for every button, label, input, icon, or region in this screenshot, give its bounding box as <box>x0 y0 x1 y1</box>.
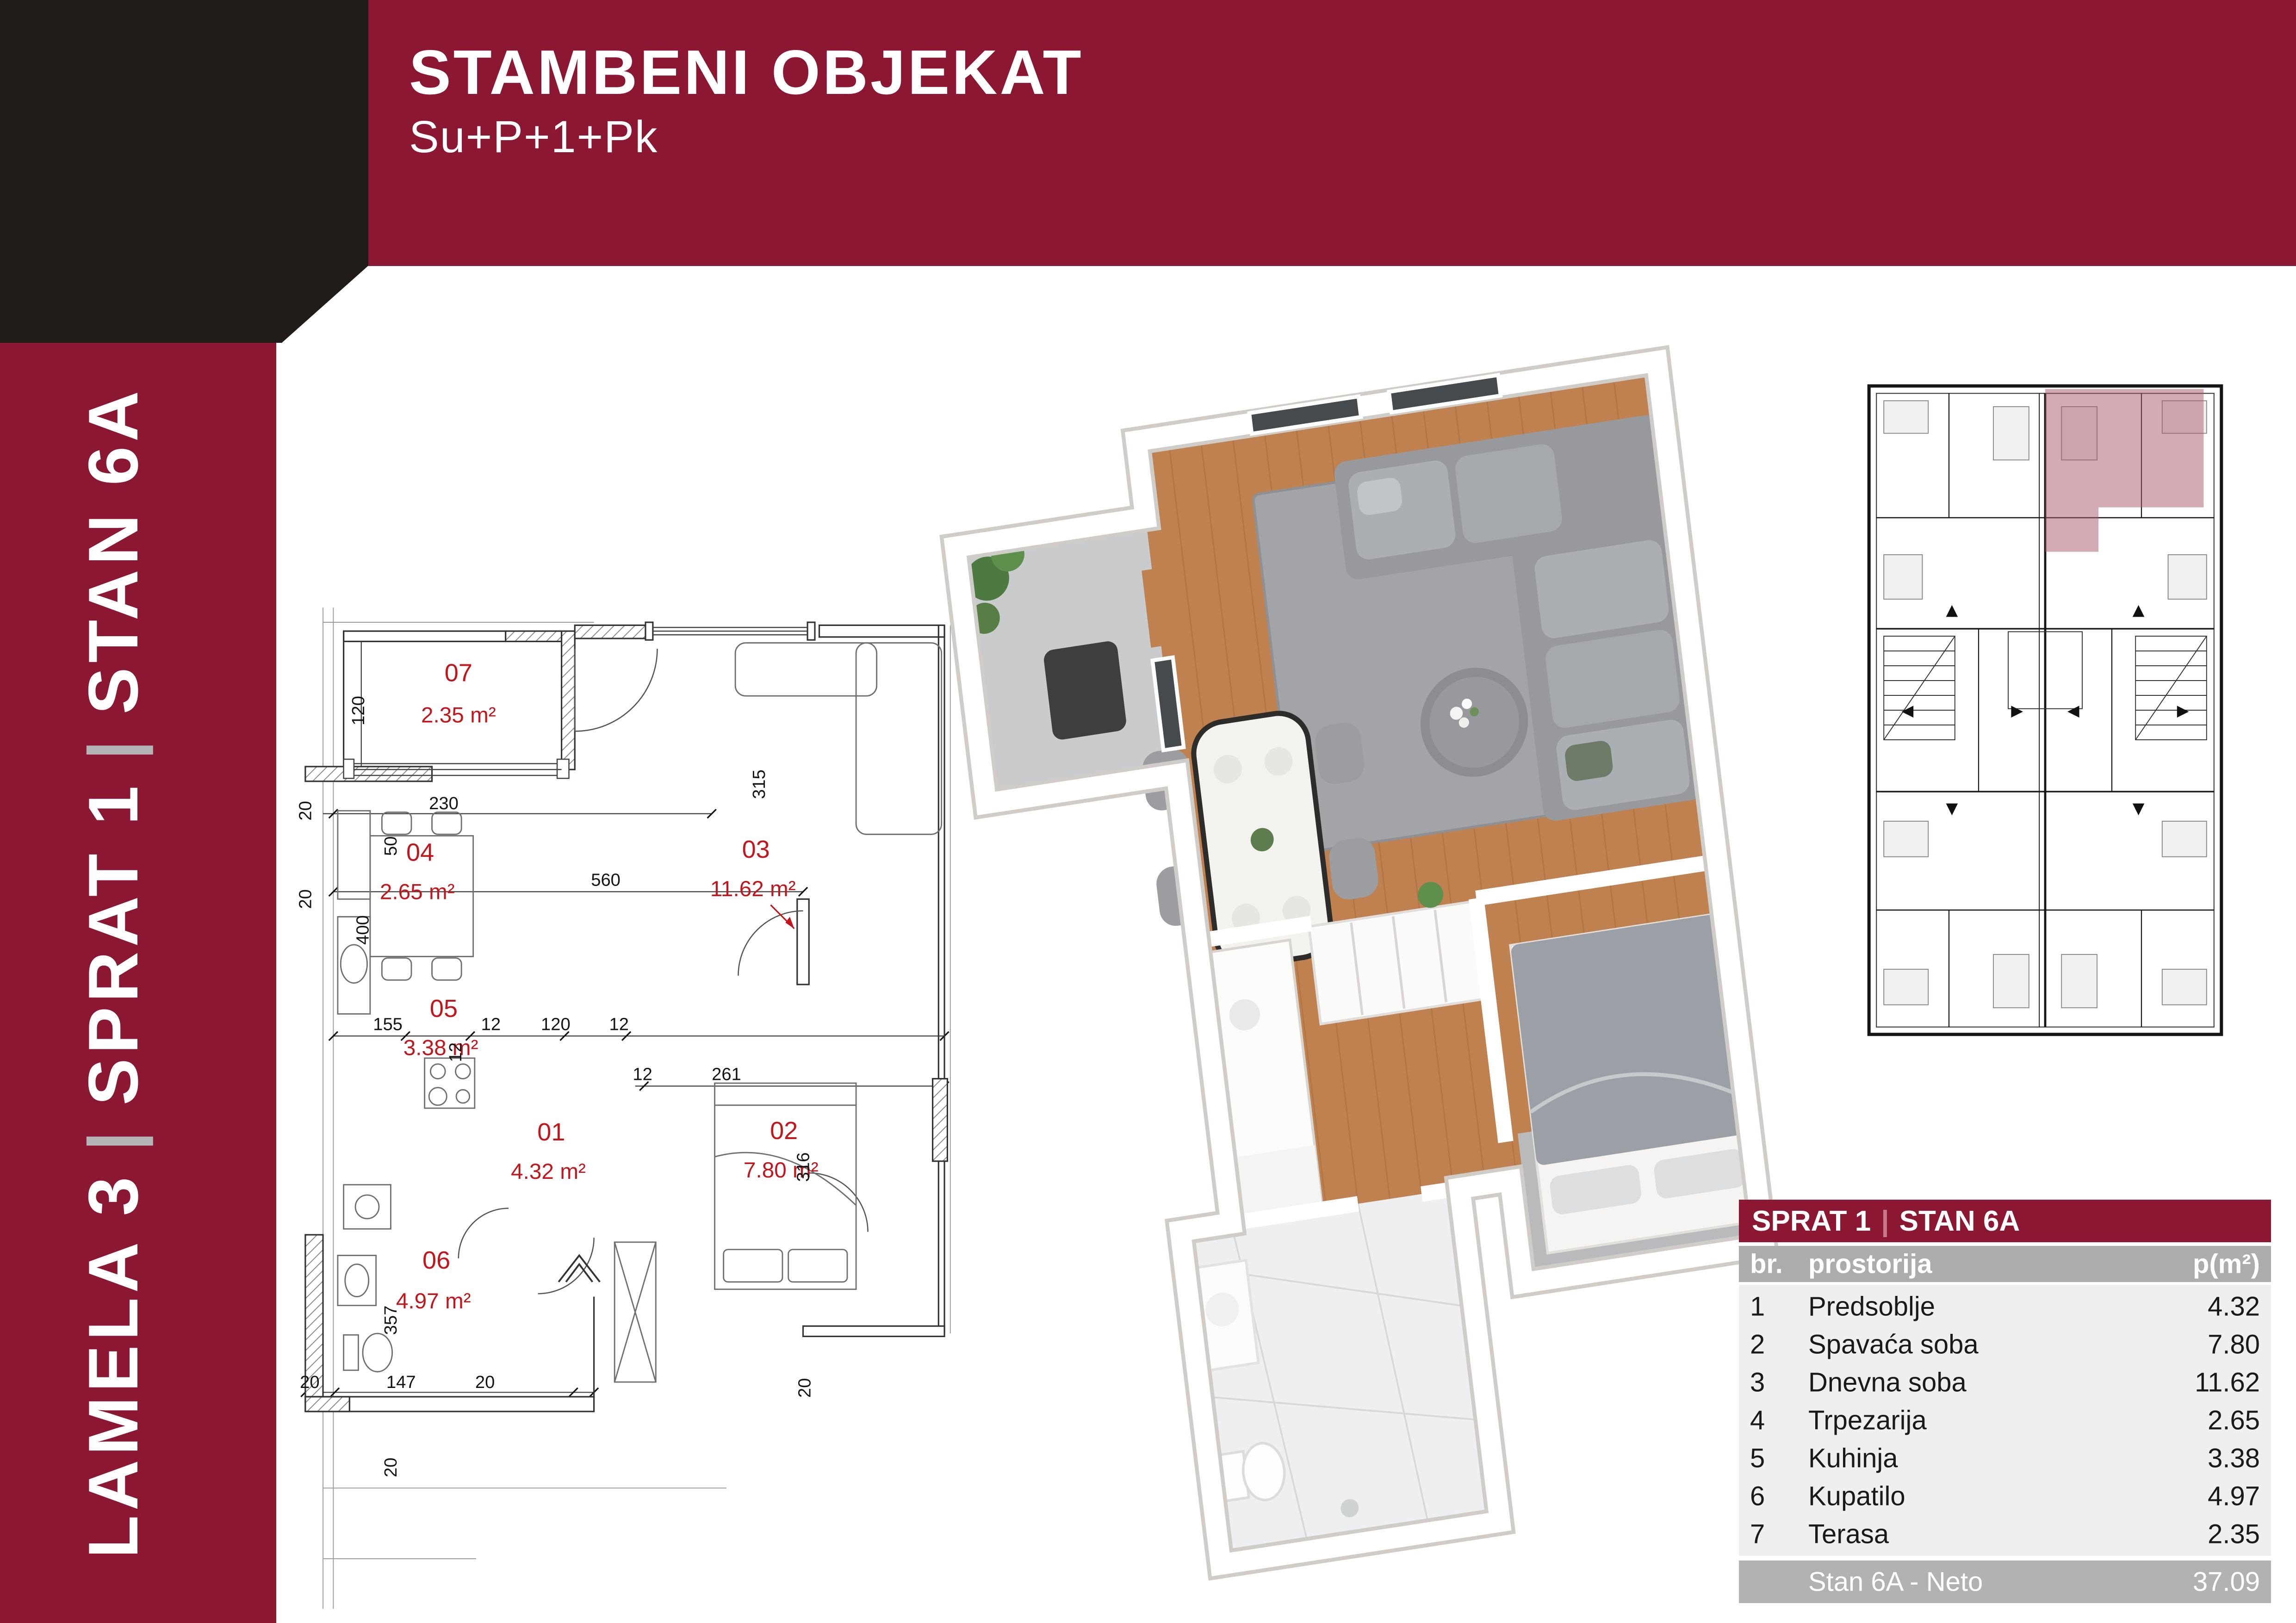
terrace-door-opening <box>1152 569 1161 646</box>
col-br: br. <box>1750 1249 1783 1280</box>
row-room: Dnevna soba <box>1808 1367 1967 1398</box>
entrance-chevron-icon <box>558 1255 600 1282</box>
row-area: 2.35 <box>2208 1519 2260 1550</box>
sidebar-lamela: LAMELA 3 <box>74 1172 153 1558</box>
brochure-page: STAMBENI OBJEKAT Su+P+1+Pk LAMELA 3|SPRA… <box>0 0 2296 1623</box>
sidebar-sprat: SPRAT 1 <box>74 781 153 1105</box>
dim: 315 <box>749 769 769 799</box>
row-num: 1 <box>1750 1291 1765 1322</box>
dim: 50 <box>381 836 401 856</box>
dim: 357 <box>381 1306 401 1335</box>
table-title-sprat: SPRAT 1 <box>1752 1205 1871 1238</box>
dim: 20 <box>296 889 316 909</box>
table-row: 5 Kuhinja 3.38 <box>1739 1439 2271 1477</box>
room-area: 4.97 m² <box>396 1289 471 1313</box>
row-room: Terasa <box>1808 1519 1889 1550</box>
kitchen-counter-icon <box>338 811 370 899</box>
table-row: 3 Dnevna soba 11.62 <box>1739 1363 2271 1401</box>
row-room: Kupatilo <box>1808 1481 1905 1512</box>
decorative-dark-block <box>0 0 368 343</box>
bathroom-sink-icon <box>338 1255 376 1305</box>
dim: 230 <box>429 793 459 813</box>
table-row: 4 Trpezarija 2.65 <box>1739 1401 2271 1439</box>
room-area: 4.32 m² <box>511 1159 586 1184</box>
dim: 12 <box>446 1042 465 1062</box>
row-num: 4 <box>1750 1405 1765 1436</box>
table-row: 7 Terasa 2.35 <box>1739 1515 2271 1553</box>
table-footer: Stan 6A - Neto 37.09 <box>1739 1561 2271 1603</box>
wardrobe-icon <box>614 1242 656 1382</box>
row-room: Kuhinja <box>1808 1443 1898 1474</box>
dim: 120 <box>348 696 368 725</box>
dim: 12 <box>609 1015 628 1035</box>
bed-icon <box>715 1083 856 1289</box>
room-area: 2.65 m² <box>380 880 455 904</box>
row-room: Spavaća soba <box>1808 1329 1979 1360</box>
sidebar-stan: STAN 6A <box>74 386 153 714</box>
toilet-icon <box>344 1333 392 1372</box>
dim: 20 <box>300 1372 319 1392</box>
row-num: 5 <box>1750 1443 1765 1474</box>
room-area: 2.35 m² <box>421 703 496 727</box>
row-area: 7.80 <box>2208 1329 2260 1360</box>
row-area: 11.62 <box>2195 1367 2260 1398</box>
dim: 120 <box>541 1015 571 1035</box>
sink-icon <box>341 945 367 983</box>
row-room: Trpezarija <box>1808 1405 1927 1436</box>
table-row: 2 Spavaća soba 7.80 <box>1739 1326 2271 1363</box>
washing-machine-icon <box>344 1185 391 1229</box>
row-area: 4.32 <box>2208 1291 2260 1322</box>
col-prostorija: prostorija <box>1808 1249 1932 1280</box>
key-plan <box>1860 377 2230 1043</box>
dim: 12 <box>481 1015 501 1035</box>
sidebar-separator: | <box>74 1127 153 1151</box>
page-subtitle: Su+P+1+Pk <box>409 111 658 163</box>
footer-total: 37.09 <box>2193 1567 2260 1598</box>
row-area: 2.65 <box>2208 1405 2260 1436</box>
row-num: 3 <box>1750 1367 1765 1398</box>
col-area: p(m²) <box>2193 1249 2260 1280</box>
room-labels: 07 2.35 m² 03 11.62 m² 04 2.65 m² 05 3.3… <box>380 659 819 1313</box>
room-label: 01 <box>537 1118 565 1146</box>
row-num: 2 <box>1750 1329 1765 1360</box>
row-room: Predsoblje <box>1808 1291 1935 1322</box>
dim: 155 <box>373 1015 403 1035</box>
stove-icon <box>425 1058 475 1108</box>
dim: 316 <box>793 1152 813 1182</box>
sidebar-separator: | <box>74 736 153 760</box>
dim: 20 <box>381 1458 401 1477</box>
room-label: 06 <box>422 1246 450 1274</box>
dim: 20 <box>296 801 316 820</box>
table-title-stan: STAN 6A <box>1899 1205 2020 1238</box>
footer-label: Stan 6A - Neto <box>1808 1567 1983 1598</box>
room-label: 05 <box>430 995 458 1022</box>
table-body: 1 Predsoblje 4.32 2 Spavaća soba 7.80 3 … <box>1739 1285 2271 1556</box>
dim: 560 <box>591 870 621 890</box>
room-area: 3.38 m² <box>403 1036 478 1060</box>
dim: 261 <box>712 1065 741 1084</box>
row-num: 6 <box>1750 1481 1765 1512</box>
room-label: 07 <box>445 659 472 687</box>
room-label: 02 <box>770 1117 798 1145</box>
dim: 20 <box>794 1378 814 1398</box>
table-row: 6 Kupatilo 4.97 <box>1739 1477 2271 1515</box>
table-column-header: br. prostorija p(m²) <box>1739 1246 2271 1282</box>
table-title-separator: | <box>1881 1205 1889 1238</box>
sidebar-vertical-label: LAMELA 3|SPRAT 1|STAN 6A <box>73 386 154 1558</box>
table-row: 1 Predsoblje 4.32 <box>1739 1288 2271 1326</box>
floorplan-2d: 07 2.35 m² 03 11.62 m² 04 2.65 m² 05 3.3… <box>285 590 958 1615</box>
render-3d <box>907 315 1788 1584</box>
room-label: 03 <box>742 836 770 863</box>
row-area: 4.97 <box>2208 1481 2260 1512</box>
dim: 12 <box>633 1065 652 1084</box>
dim: 147 <box>386 1372 416 1392</box>
row-area: 3.38 <box>2208 1443 2260 1474</box>
dim: 400 <box>353 915 373 945</box>
table-title-bar: SPRAT 1 | STAN 6A <box>1739 1200 2271 1242</box>
page-title: STAMBENI OBJEKAT <box>409 36 1084 108</box>
unit-table: SPRAT 1 | STAN 6A br. prostorija p(m²) 1… <box>1739 1200 2271 1603</box>
bathroom-floor <box>1180 1188 1500 1564</box>
room-area: 11.62 m² <box>710 877 796 901</box>
room-label: 04 <box>406 839 434 867</box>
row-num: 7 <box>1750 1519 1765 1550</box>
terrace-furniture <box>1043 640 1128 741</box>
dim: 20 <box>475 1372 495 1392</box>
pillow <box>1564 739 1614 782</box>
